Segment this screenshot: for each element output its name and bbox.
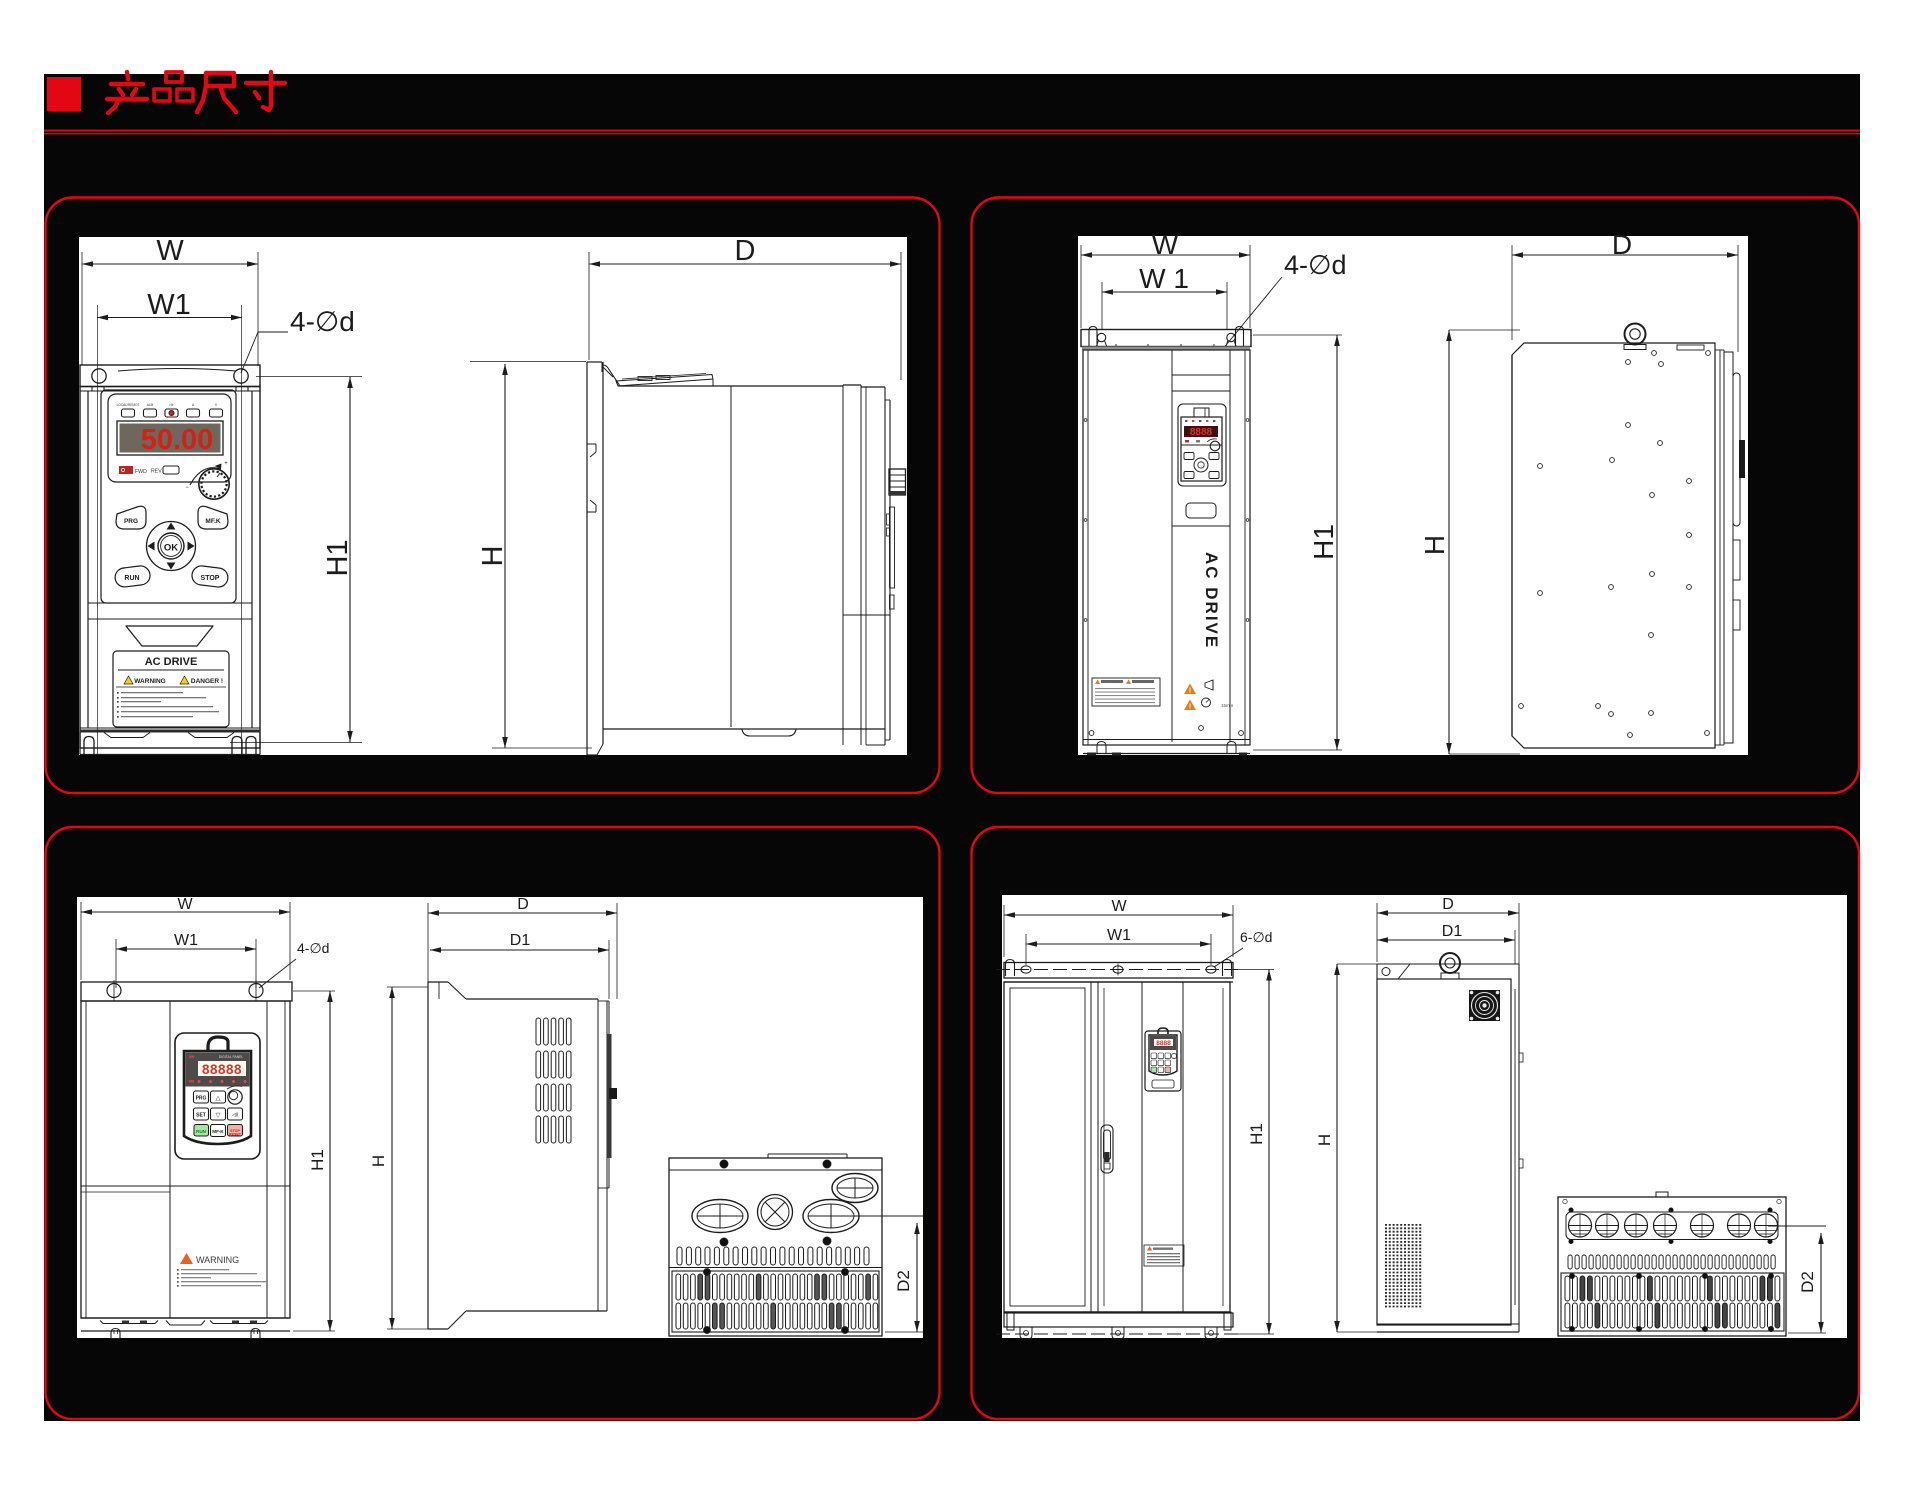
svg-text:D1: D1: [1442, 923, 1463, 940]
svg-text:LOCAL/REMOT: LOCAL/REMOT: [117, 403, 140, 407]
svg-text:MF.K: MF.K: [205, 518, 220, 525]
svg-text:PRG: PRG: [124, 518, 138, 525]
svg-text:4-∅d: 4-∅d: [290, 306, 355, 337]
svg-text:D: D: [517, 896, 529, 913]
svg-text:OK: OK: [164, 543, 178, 554]
svg-text:STOP: STOP: [201, 575, 220, 582]
svg-text:W1: W1: [174, 932, 198, 949]
svg-text:W1: W1: [147, 289, 191, 321]
svg-text:D: D: [1442, 896, 1454, 913]
svg-text:W: W: [177, 896, 193, 913]
svg-text:D: D: [1612, 229, 1632, 260]
svg-text:D2: D2: [1798, 1271, 1817, 1293]
svg-text:H1: H1: [308, 1149, 327, 1171]
svg-text:AC DRIVE: AC DRIVE: [145, 656, 198, 668]
svg-text:DANGER !: DANGER !: [191, 678, 223, 685]
svg-text:D1: D1: [510, 932, 531, 949]
svg-text:!: !: [1189, 704, 1191, 711]
svg-text:H: H: [1419, 535, 1450, 555]
svg-text:AC DRIVE: AC DRIVE: [1202, 552, 1221, 649]
svg-text:W 1: W 1: [1139, 263, 1189, 294]
svg-text:8888: 8888: [1190, 427, 1213, 438]
svg-text:W: W: [1152, 229, 1179, 260]
svg-text:4-∅d: 4-∅d: [297, 940, 329, 956]
svg-text:50.00: 50.00: [141, 424, 214, 456]
svg-text:+: +: [224, 461, 228, 467]
svg-text:H: H: [1315, 1134, 1334, 1146]
svg-text:88888: 88888: [202, 1062, 242, 1077]
svg-text:W1: W1: [1107, 927, 1131, 944]
svg-text:W: W: [156, 235, 184, 267]
svg-text:4-∅d: 4-∅d: [1284, 250, 1347, 280]
svg-text:H: H: [477, 546, 509, 567]
svg-text:W: W: [1111, 898, 1127, 915]
svg-text:6-∅d: 6-∅d: [1240, 929, 1272, 945]
svg-text:◁‖: ◁‖: [232, 1113, 238, 1119]
svg-text:15min: 15min: [1221, 703, 1234, 708]
svg-text:H1: H1: [1247, 1123, 1266, 1145]
svg-text:8888: 8888: [1156, 1040, 1171, 1047]
svg-text:H: H: [369, 1155, 388, 1167]
svg-text:Hz: Hz: [170, 403, 174, 407]
svg-text:SET: SET: [196, 1113, 206, 1119]
svg-text:RESET: RESET: [229, 1133, 242, 1137]
svg-text:DIGITAL PANEL: DIGITAL PANEL: [219, 1055, 244, 1059]
svg-text:ALM: ALM: [147, 403, 154, 407]
svg-text:H1: H1: [1308, 524, 1339, 560]
svg-text:FWD: FWD: [135, 469, 147, 475]
svg-text:WARNING: WARNING: [134, 678, 165, 685]
svg-text:!: !: [1189, 688, 1191, 695]
svg-text:PRG: PRG: [196, 1096, 207, 1102]
svg-text:RUN: RUN: [196, 1129, 207, 1134]
svg-text:REV: REV: [151, 469, 162, 475]
svg-text:RUN: RUN: [124, 575, 139, 582]
svg-text:MF-K: MF-K: [212, 1129, 224, 1134]
svg-text:H1: H1: [322, 539, 354, 576]
svg-text:WARNING: WARNING: [196, 1255, 239, 1265]
svg-text:D: D: [735, 235, 756, 267]
svg-text:D2: D2: [894, 1270, 913, 1292]
svg-text:−: −: [185, 485, 189, 491]
